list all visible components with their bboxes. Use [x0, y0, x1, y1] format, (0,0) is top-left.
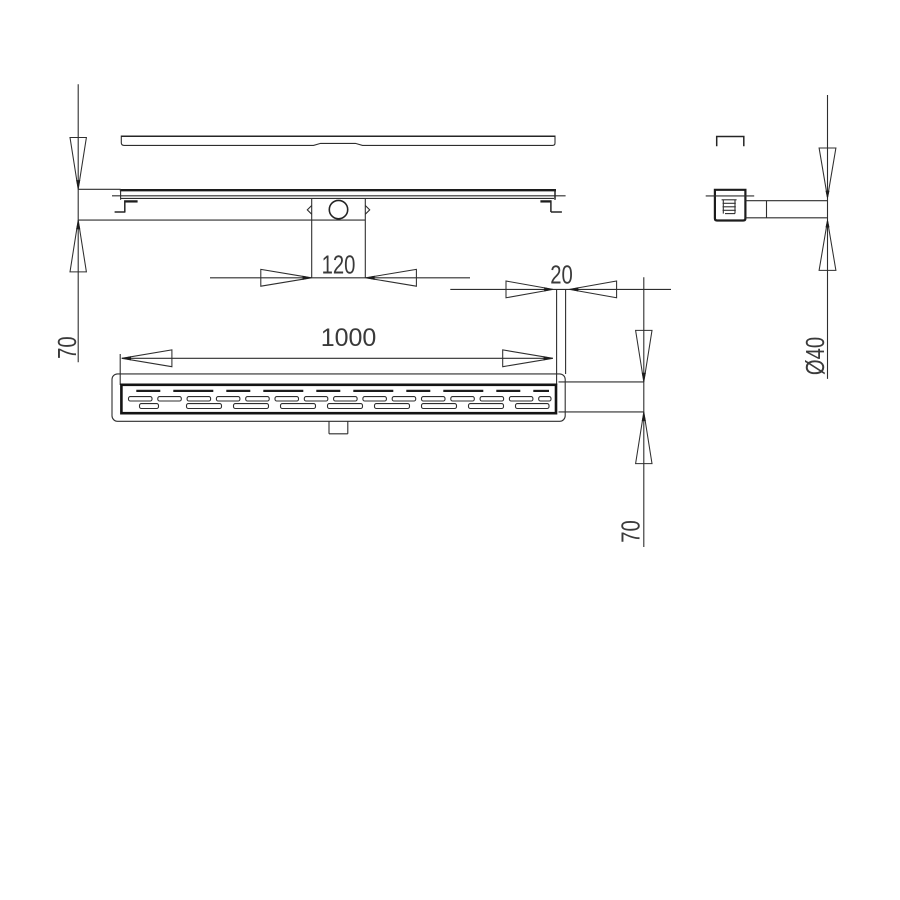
svg-text:1000: 1000: [321, 324, 377, 352]
svg-text:Ø40: Ø40: [801, 337, 830, 375]
svg-text:20: 20: [550, 260, 573, 289]
svg-text:70: 70: [616, 520, 645, 543]
svg-text:70: 70: [52, 336, 81, 359]
svg-text:120: 120: [322, 250, 356, 279]
